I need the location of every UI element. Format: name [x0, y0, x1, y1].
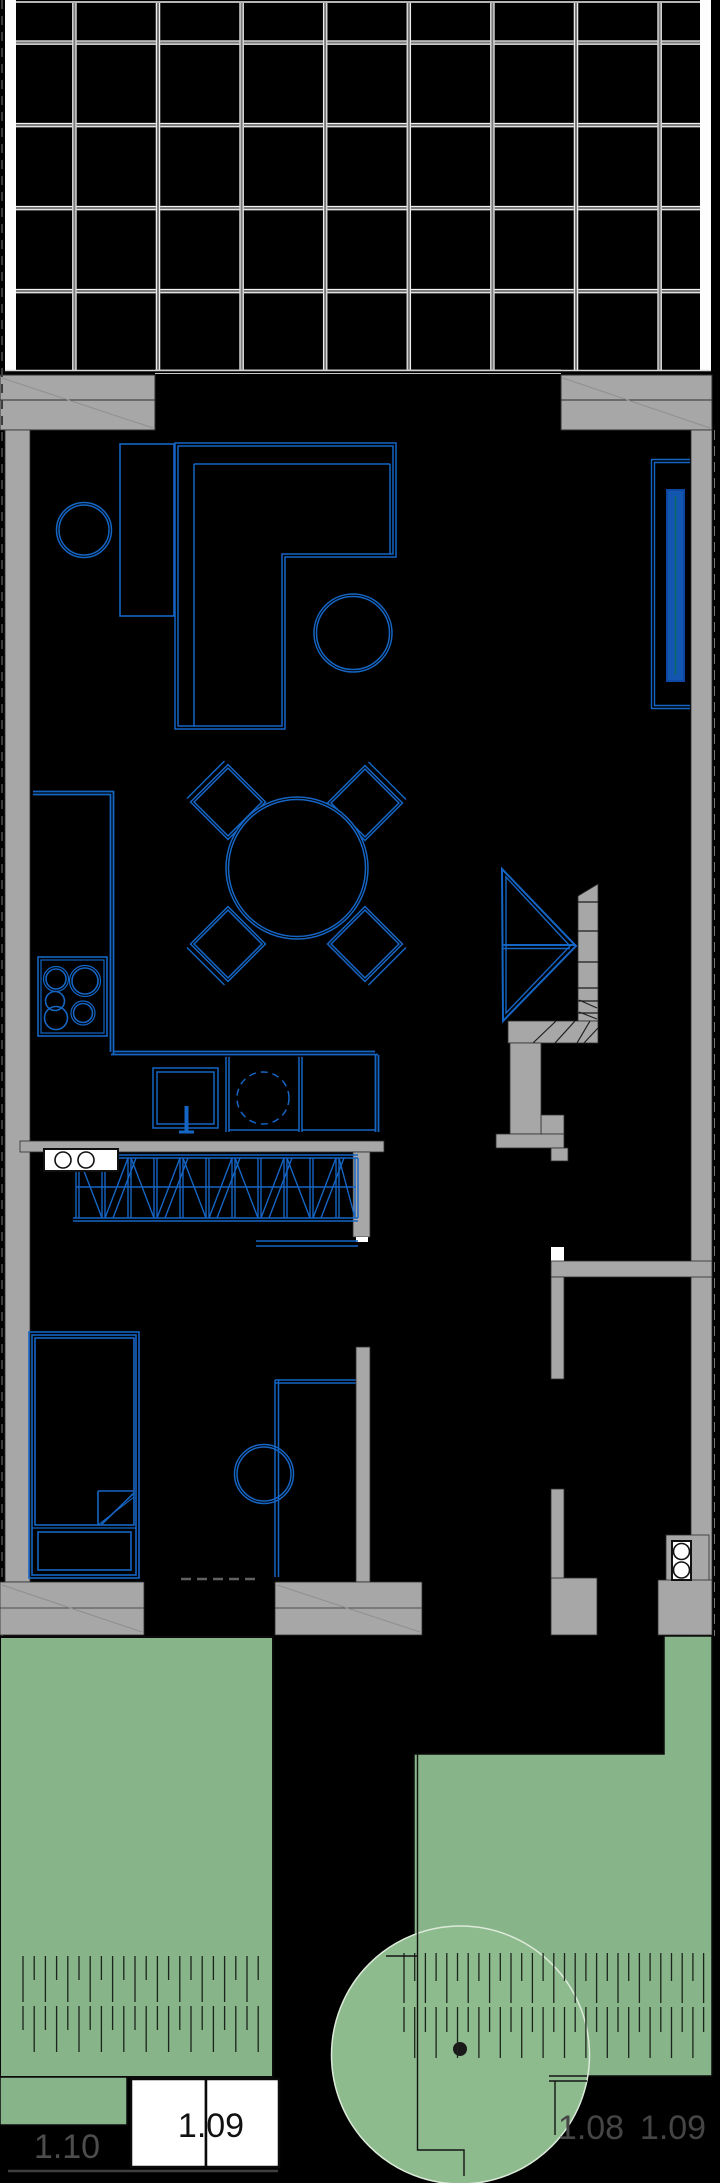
svg-text:1.08: 1.08	[558, 2109, 624, 2147]
svg-text:1.09: 1.09	[640, 2109, 706, 2147]
svg-text:1.09: 1.09	[178, 2107, 244, 2145]
svg-text:1.10: 1.10	[34, 2128, 100, 2166]
